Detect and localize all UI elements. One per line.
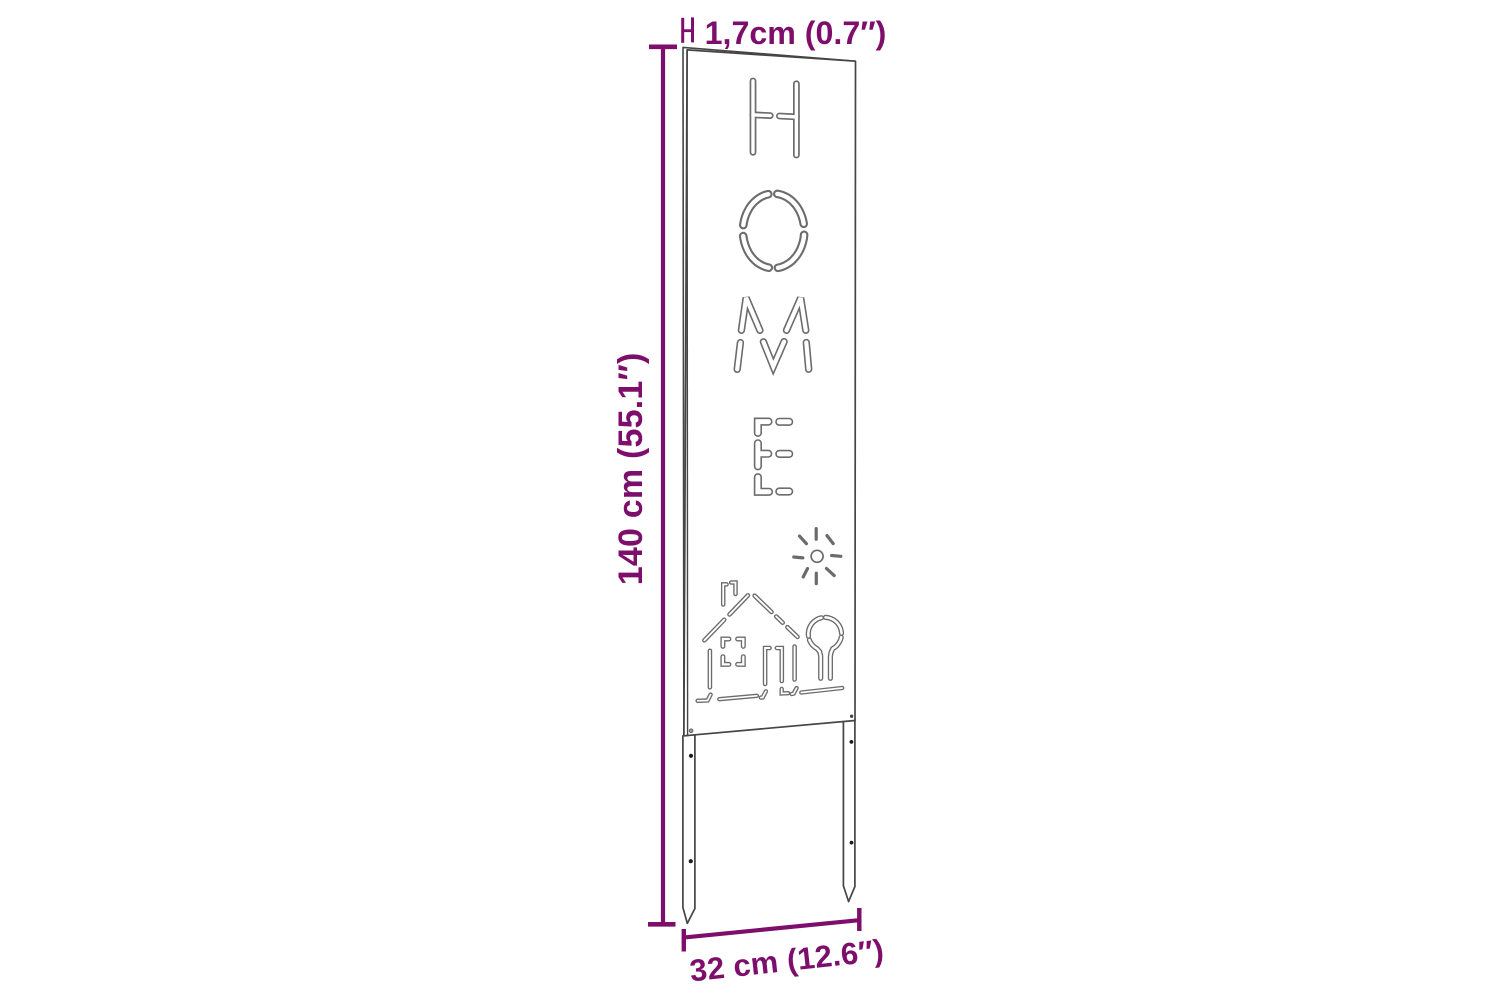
svg-text:140 cm (55.1″): 140 cm (55.1″) (612, 353, 650, 586)
svg-text:1,7cm (0.7″): 1,7cm (0.7″) (705, 15, 887, 51)
